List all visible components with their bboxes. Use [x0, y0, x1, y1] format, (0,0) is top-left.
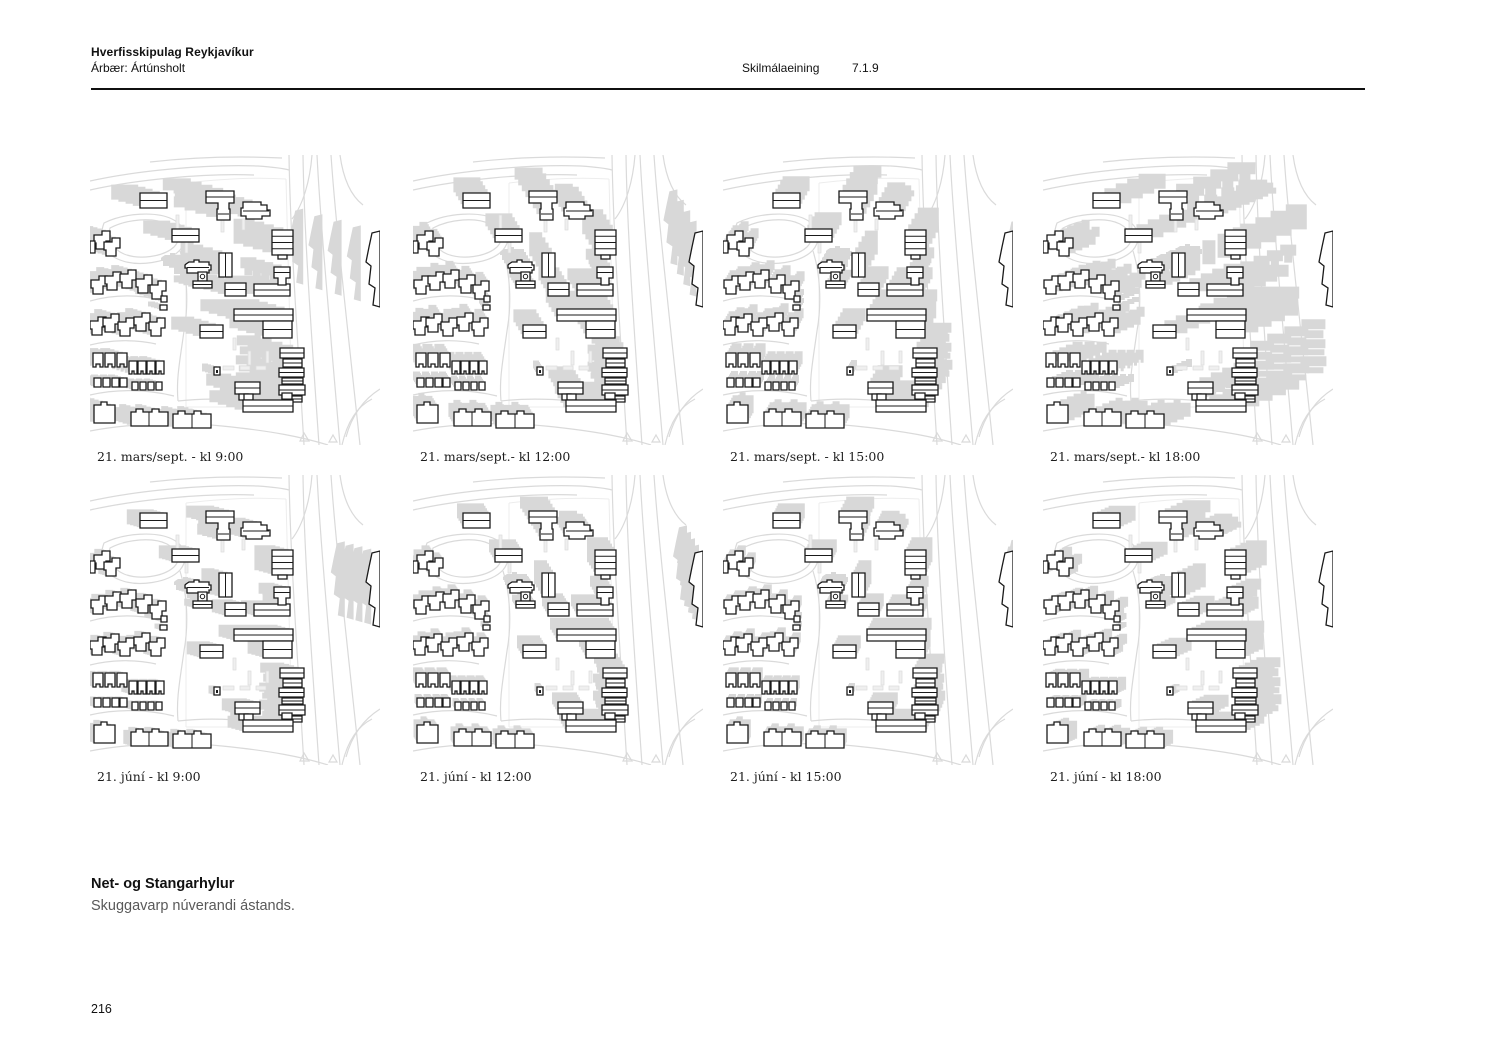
panel-mars-1200: 21. mars/sept.- kl 12:00 [413, 155, 703, 464]
section-label: Skilmálaeining [742, 61, 819, 75]
shadow-map [1043, 475, 1333, 765]
panel-caption: 21. mars/sept.- kl 12:00 [420, 449, 703, 464]
shadow-map [723, 475, 1013, 765]
document-title: Hverfisskipulag Reykjavíkur [91, 45, 254, 59]
page-number: 216 [91, 1002, 112, 1016]
panel-caption: 21. júní - kl 9:00 [97, 769, 380, 784]
panel-caption: 21. júní - kl 18:00 [1050, 769, 1333, 784]
shadow-map [1043, 155, 1333, 445]
document-area: Árbær: Ártúnsholt [91, 61, 185, 75]
panel-caption: 21. júní - kl 12:00 [420, 769, 703, 784]
panel-caption: 21. mars/sept.- kl 18:00 [1050, 449, 1333, 464]
section-code: 7.1.9 [852, 61, 879, 75]
panel-caption: 21. mars/sept. - kl 15:00 [730, 449, 1013, 464]
panel-juni-1200: 21. júní - kl 12:00 [413, 475, 703, 784]
panel-mars-1800: 21. mars/sept.- kl 18:00 [1043, 155, 1333, 464]
panel-caption: 21. júní - kl 15:00 [730, 769, 1013, 784]
document-page: Hverfisskipulag Reykjavíkur Árbær: Ártún… [0, 0, 1500, 1061]
panel-juni-1800: 21. júní - kl 18:00 [1043, 475, 1333, 784]
panel-juni-1500: 21. júní - kl 15:00 [723, 475, 1013, 784]
shadow-map [723, 155, 1013, 445]
header-rule [91, 88, 1365, 90]
panel-mars-0900: 21. mars/sept. - kl 9:00 [90, 155, 380, 464]
panel-caption: 21. mars/sept. - kl 9:00 [97, 449, 380, 464]
shadow-map [90, 155, 380, 445]
panel-juni-0900: 21. júní - kl 9:00 [90, 475, 380, 784]
figure-title: Net- og Stangarhylur [91, 876, 234, 892]
shadow-map [413, 155, 703, 445]
figure-subtitle: Skuggavarp núverandi ástands. [91, 898, 295, 914]
panel-mars-1500: 21. mars/sept. - kl 15:00 [723, 155, 1013, 464]
shadow-map [413, 475, 703, 765]
shadow-map [90, 475, 380, 765]
